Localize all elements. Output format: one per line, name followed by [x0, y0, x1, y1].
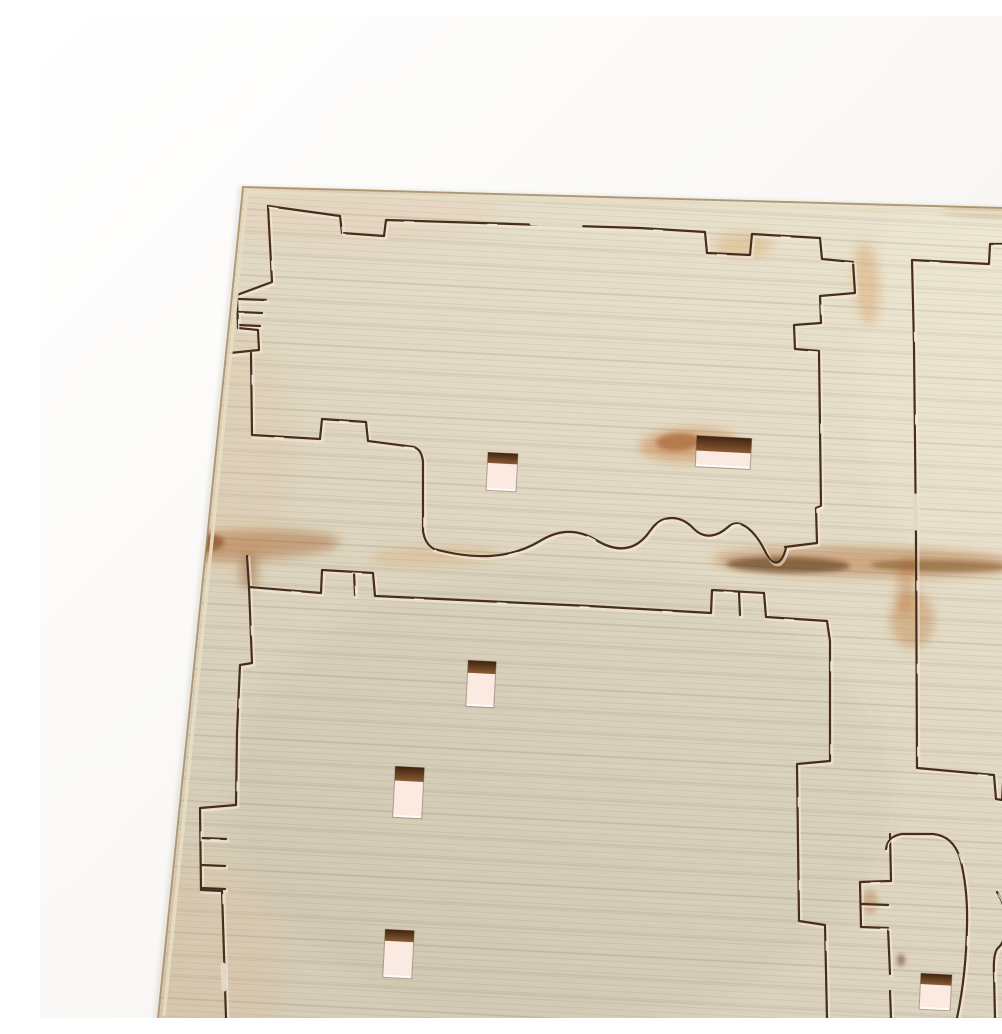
hole-charred-edge [487, 452, 518, 464]
laser-cut-line-lower-panel-top-slit-a [354, 572, 355, 595]
laser-cut-line-lower-left-slit-3 [201, 888, 225, 889]
laser-cut-line-lower-left-slit-2 [201, 865, 225, 866]
laser-cut-line-bottom-comb-e-slit [862, 904, 888, 905]
cutout-hole-1 [486, 452, 518, 492]
uncut-bridge [915, 496, 916, 528]
hole-charred-edge [468, 660, 497, 674]
scorch-mark [862, 890, 878, 914]
laser-kerf-glow [864, 906, 890, 907]
cutout-hole-6 [919, 973, 952, 1011]
laser-cut-line-panel1-left-slit-1 [239, 299, 266, 300]
hole-charred-edge [920, 973, 952, 985]
hole-charred-edge [696, 436, 752, 454]
laser-cut-line-lower-left-slit-1 [201, 838, 226, 839]
uncut-bridge [223, 965, 224, 989]
scorch-mark [897, 954, 905, 966]
laser-kerf-glow [203, 867, 227, 868]
laser-cut-line-panel1-left-slit-3 [238, 325, 260, 326]
laser-kerf-glow [240, 314, 264, 315]
product-photo [40, 16, 1002, 1018]
laser-cut-line-lower-panel-top-slit-b [739, 592, 740, 615]
hole-charred-edge [385, 929, 415, 942]
laser-kerf-glow [241, 301, 268, 302]
hole-charred-edge [395, 766, 425, 782]
cutout-hole-2 [695, 436, 752, 470]
cutout-hole-4 [393, 766, 425, 818]
cutout-hole-5 [383, 929, 414, 978]
plywood-sheet-photo [40, 16, 1002, 1018]
cutout-hole-3 [466, 660, 496, 707]
uncut-bridge [532, 223, 580, 226]
wood-stain [230, 566, 890, 1018]
